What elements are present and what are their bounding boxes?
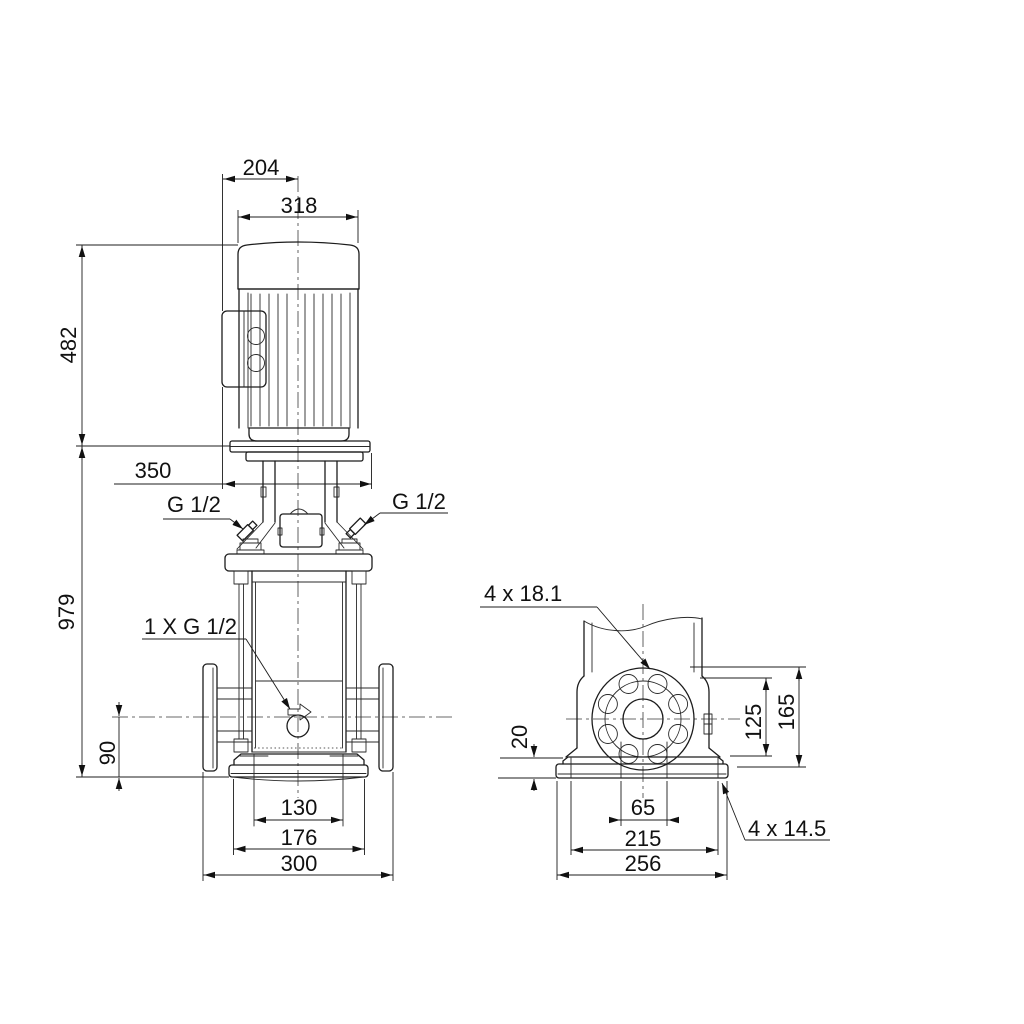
label-gauge-left: G 1/2 — [167, 492, 221, 517]
dim-label-130: 130 — [281, 795, 318, 820]
suction-flange — [203, 664, 252, 771]
motor-cooling-fins — [251, 294, 341, 426]
front-dimensions: 204 318 482 979 350 90 G 1/2 G 1/2 1 X G… — [54, 155, 448, 881]
label-drain-plug: 1 X G 1/2 — [144, 614, 237, 639]
pump-dimensional-drawing: 204 318 482 979 350 90 G 1/2 G 1/2 1 X G… — [0, 0, 1024, 1024]
pump-head-flange — [225, 554, 372, 571]
label-flange-holes: 4 x 18.1 — [484, 581, 562, 606]
coupling-guard — [280, 514, 322, 547]
label-base-holes: 4 x 14.5 — [748, 816, 826, 841]
dim-label-176: 176 — [281, 825, 318, 850]
dim-label-165: 165 — [774, 694, 799, 731]
gauge-plug-right — [345, 518, 366, 539]
motor-stool — [225, 441, 372, 571]
cable-entry-bottom — [248, 355, 265, 372]
chamber-stack — [234, 571, 366, 752]
dim-label-65: 65 — [631, 795, 655, 820]
dim-label-90: 90 — [95, 741, 120, 765]
dim-label-350: 350 — [135, 458, 172, 483]
flange-bolt-right — [336, 539, 363, 554]
motor — [222, 242, 359, 441]
flange-bolt-left — [237, 539, 264, 554]
dim-label-125: 125 — [741, 704, 766, 741]
side-dimensions: 4 x 18.1 20 125 165 65 215 256 4 x 14.5 — [480, 581, 830, 880]
dim-label-300: 300 — [281, 851, 318, 876]
dim-label-204: 204 — [243, 155, 280, 180]
motor-end-shield — [249, 428, 349, 441]
dim-label-318: 318 — [281, 193, 318, 218]
dim-label-215: 215 — [625, 826, 662, 851]
drawing-canvas: 204 318 482 979 350 90 G 1/2 G 1/2 1 X G… — [0, 0, 1024, 1024]
motor-top-cap — [238, 242, 359, 289]
centerlines — [112, 176, 740, 798]
label-gauge-right: G 1/2 — [392, 489, 446, 514]
dim-label-20: 20 — [507, 725, 532, 749]
discharge-flange — [346, 664, 393, 771]
dim-label-482: 482 — [56, 327, 81, 364]
dim-label-979: 979 — [54, 594, 79, 631]
pump-base-side — [556, 757, 728, 778]
dim-label-256: 256 — [625, 851, 662, 876]
cable-entry-top — [248, 328, 265, 345]
